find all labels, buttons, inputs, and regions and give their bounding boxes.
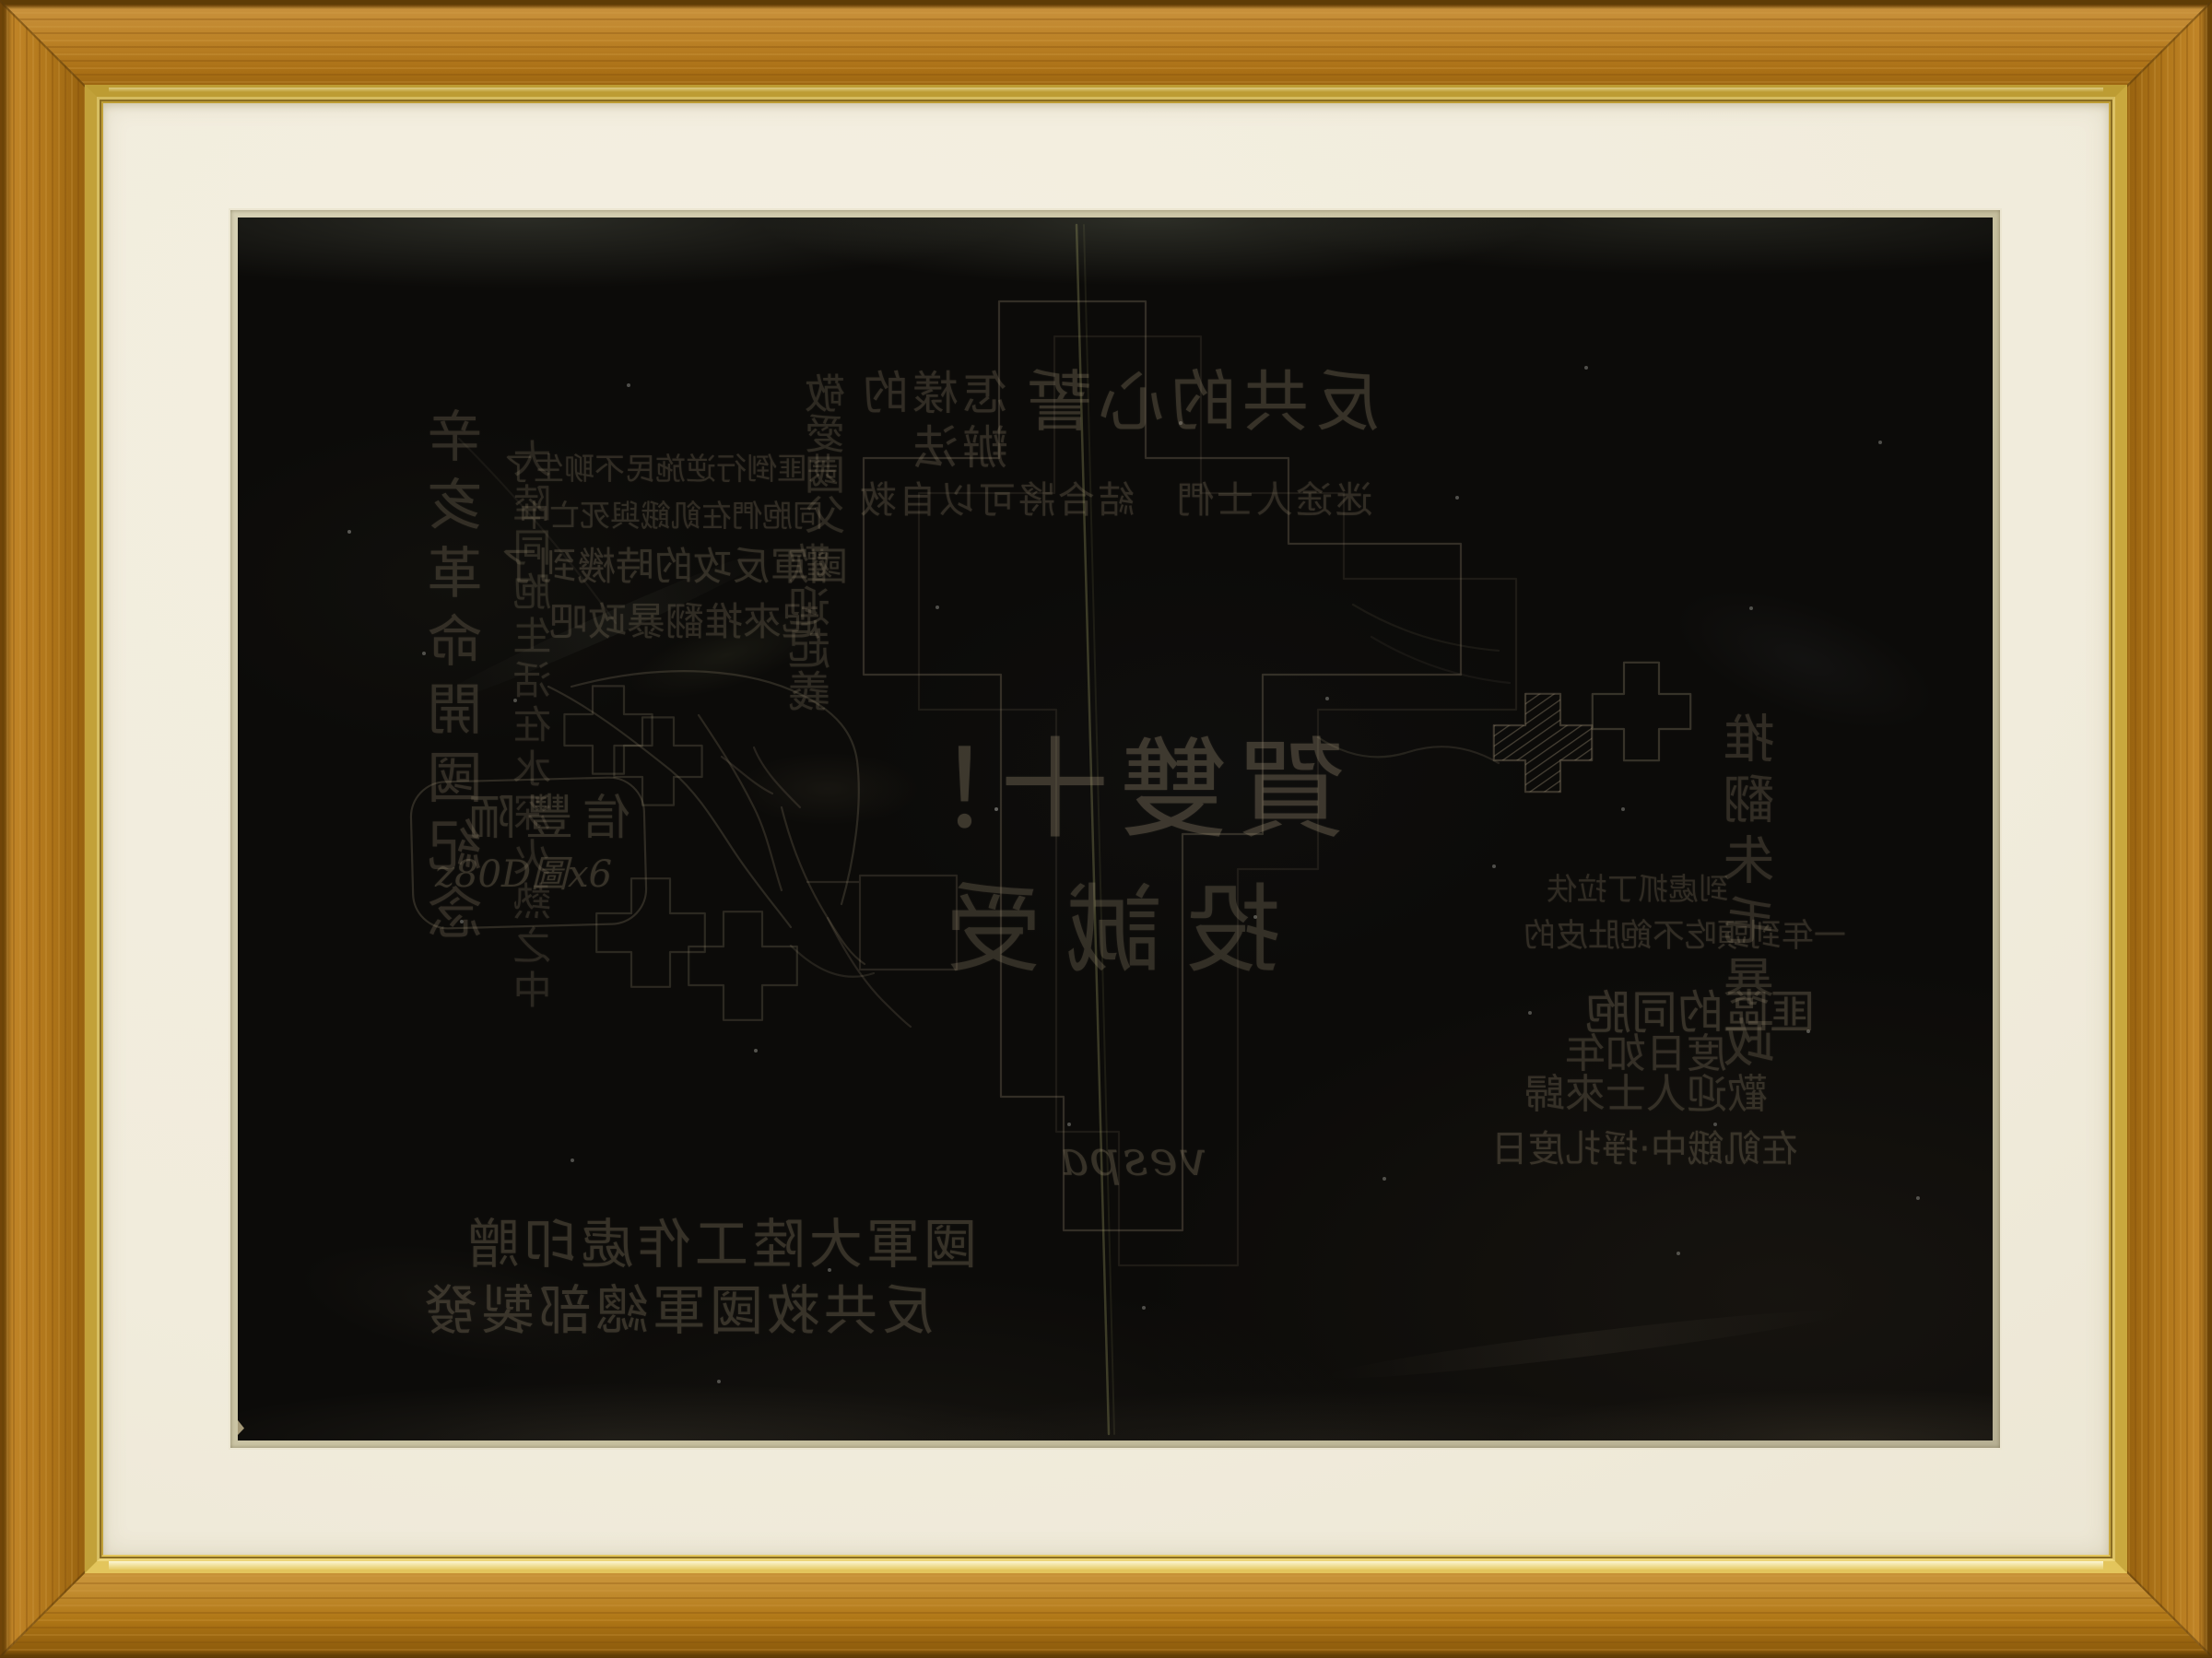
etched-text-top-slogan-left: 怎樣的辦法	[853, 367, 1008, 476]
etched-text-headline-line1: 賀雙十！	[874, 726, 1346, 854]
etched-text-left-block-line2: 同胞們在飢餓與死亡中	[519, 499, 823, 535]
mat-opening-bevel: 賀雙十！投誠受反共的心誓怎樣的辦法敬愛國父迷途人士們 結合將可以自救辛亥革命開國…	[230, 210, 2000, 1448]
map-river	[754, 747, 800, 807]
map-river	[699, 715, 782, 890]
double-cross-emblem-right-hatched	[1494, 694, 1592, 792]
etched-text-maker-mark: vespa	[1058, 1132, 1206, 1188]
etched-text-map-label: 信豐陑	[459, 791, 630, 847]
map-river	[782, 807, 865, 964]
carbon-sheet: 賀雙十！投誠受反共的心誓怎樣的辦法敬愛國父迷途人士們 結合將可以自救辛亥革命開國…	[238, 218, 1993, 1440]
map-river	[722, 757, 772, 794]
double-cross-emblem-right-outline	[1593, 663, 1690, 760]
etched-text-bottom-line1: 國軍大陸工作處印贈	[463, 1213, 977, 1276]
scratch-line	[1353, 605, 1499, 651]
scratch-line	[1371, 637, 1510, 683]
etched-text-right-block-line6: 在飢餓中·掙扎度日	[1491, 1128, 1798, 1171]
etched-text-right-block-line2: 一年到頭吃不飽肚皮的	[1524, 918, 1846, 956]
map-river	[828, 918, 911, 1027]
etched-text-right-block-line1: 到處抓丁拉伕	[1547, 872, 1729, 908]
etched-text-map-code: z80D圖x6	[435, 853, 612, 897]
double-cross-emblem-left-upper	[564, 686, 652, 773]
etched-text-left-block-line1: 共匪倒行逆施民不聊生了	[503, 452, 838, 488]
etched-text-top-slogan-right: 反共的心誓	[1021, 363, 1381, 441]
etched-text-bottom-line2: 反共救國軍總部製發	[420, 1279, 935, 1342]
etched-text-headline-line2: 投誠受	[922, 874, 1281, 987]
etched-text-top-slogan-row2: 迷途人士們 結合將可以自救	[857, 479, 1372, 523]
etched-text-left-block-line4: 起來推翻暴政吧	[549, 599, 820, 645]
fillet-specular-highlight	[109, 88, 2103, 92]
etched-text-mid-column: 歡迎起義	[787, 542, 837, 711]
framed-stencil-photo: 賀雙十！投誠受反共的心誓怎樣的辦法敬愛國父迷途人士們 結合將可以自救辛亥革命開國…	[0, 0, 2212, 1658]
etched-text-right-block-line5: 歡迎人士來歸	[1524, 1071, 1768, 1119]
fillet-specular-highlight	[109, 1561, 2103, 1570]
